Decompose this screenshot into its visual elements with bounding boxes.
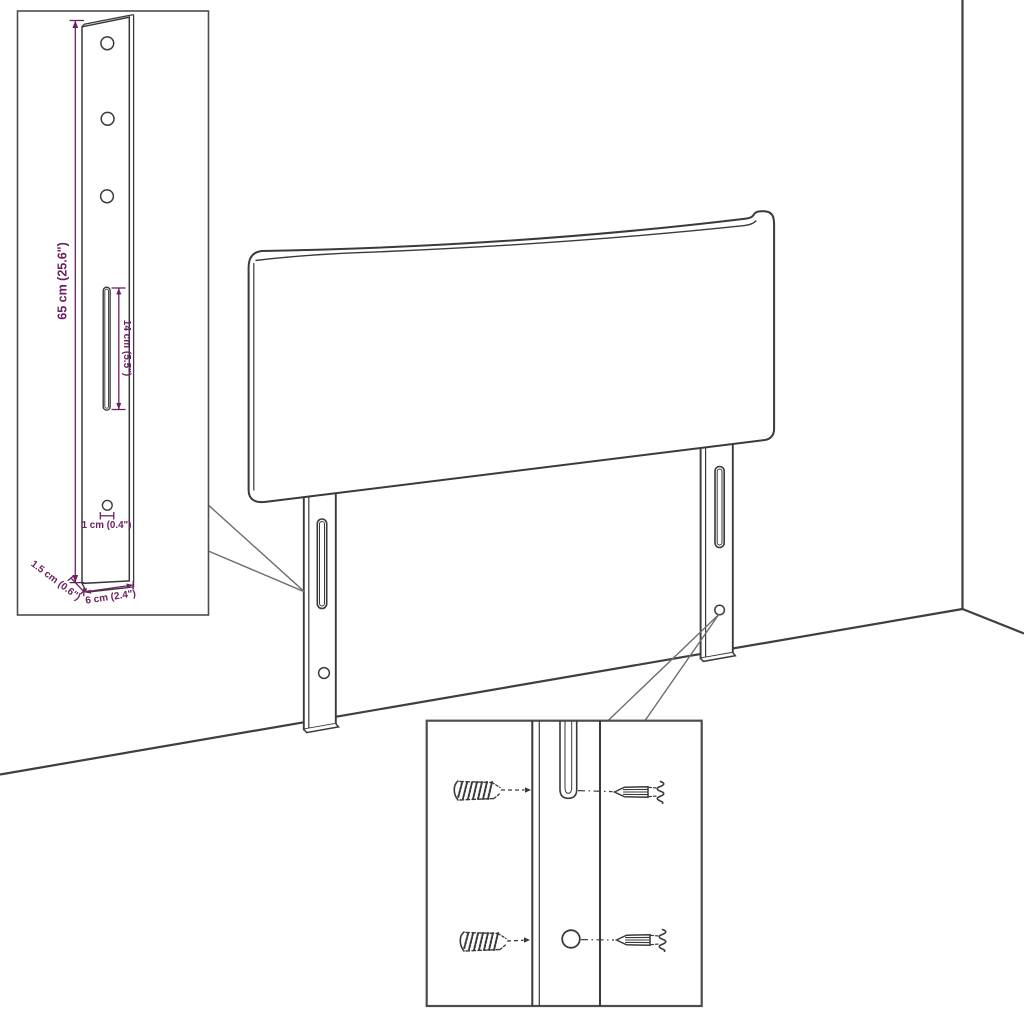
callout-bracket-lines xyxy=(208,505,304,592)
mounting-inset xyxy=(427,721,702,1006)
bracket-front-face xyxy=(82,17,129,583)
left-leg xyxy=(304,466,339,733)
dim-height-label: 65 cm (25.6") xyxy=(55,242,69,320)
headboard-outline xyxy=(249,211,775,502)
headboard-panel xyxy=(249,211,775,502)
bracket-inset: 65 cm (25.6") 14 cm (5.5") 1 cm (0.4") 1… xyxy=(18,11,209,615)
floor-line-right xyxy=(963,609,1024,634)
bracket-drawing xyxy=(82,15,134,593)
dim-hole-label: 1 cm (0.4") xyxy=(82,520,132,531)
mounting-inset-box xyxy=(427,721,702,1006)
product-diagram: 65 cm (25.6") 14 cm (5.5") 1 cm (0.4") 1… xyxy=(0,0,1024,1024)
anchor-leader-bottom xyxy=(507,940,524,941)
dim-slot-label: 14 cm (5.5") xyxy=(121,320,132,376)
